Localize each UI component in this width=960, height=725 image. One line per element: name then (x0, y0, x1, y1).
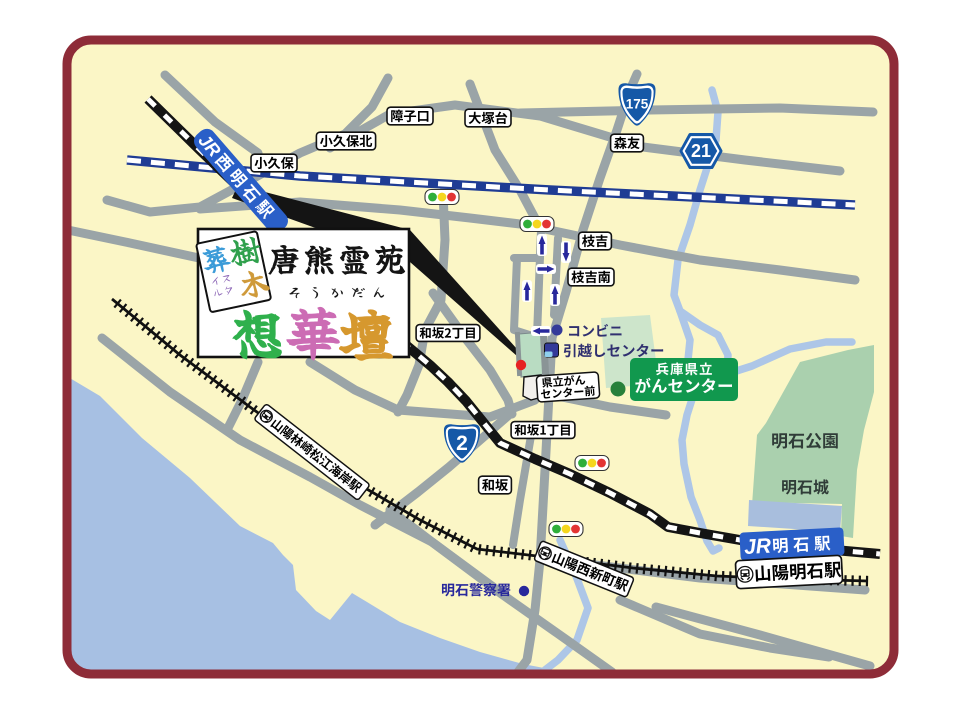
svg-text:2: 2 (456, 432, 468, 455)
svg-text:JR: JR (744, 535, 773, 559)
svg-text:21: 21 (691, 141, 711, 161)
svg-text:175: 175 (626, 96, 649, 111)
